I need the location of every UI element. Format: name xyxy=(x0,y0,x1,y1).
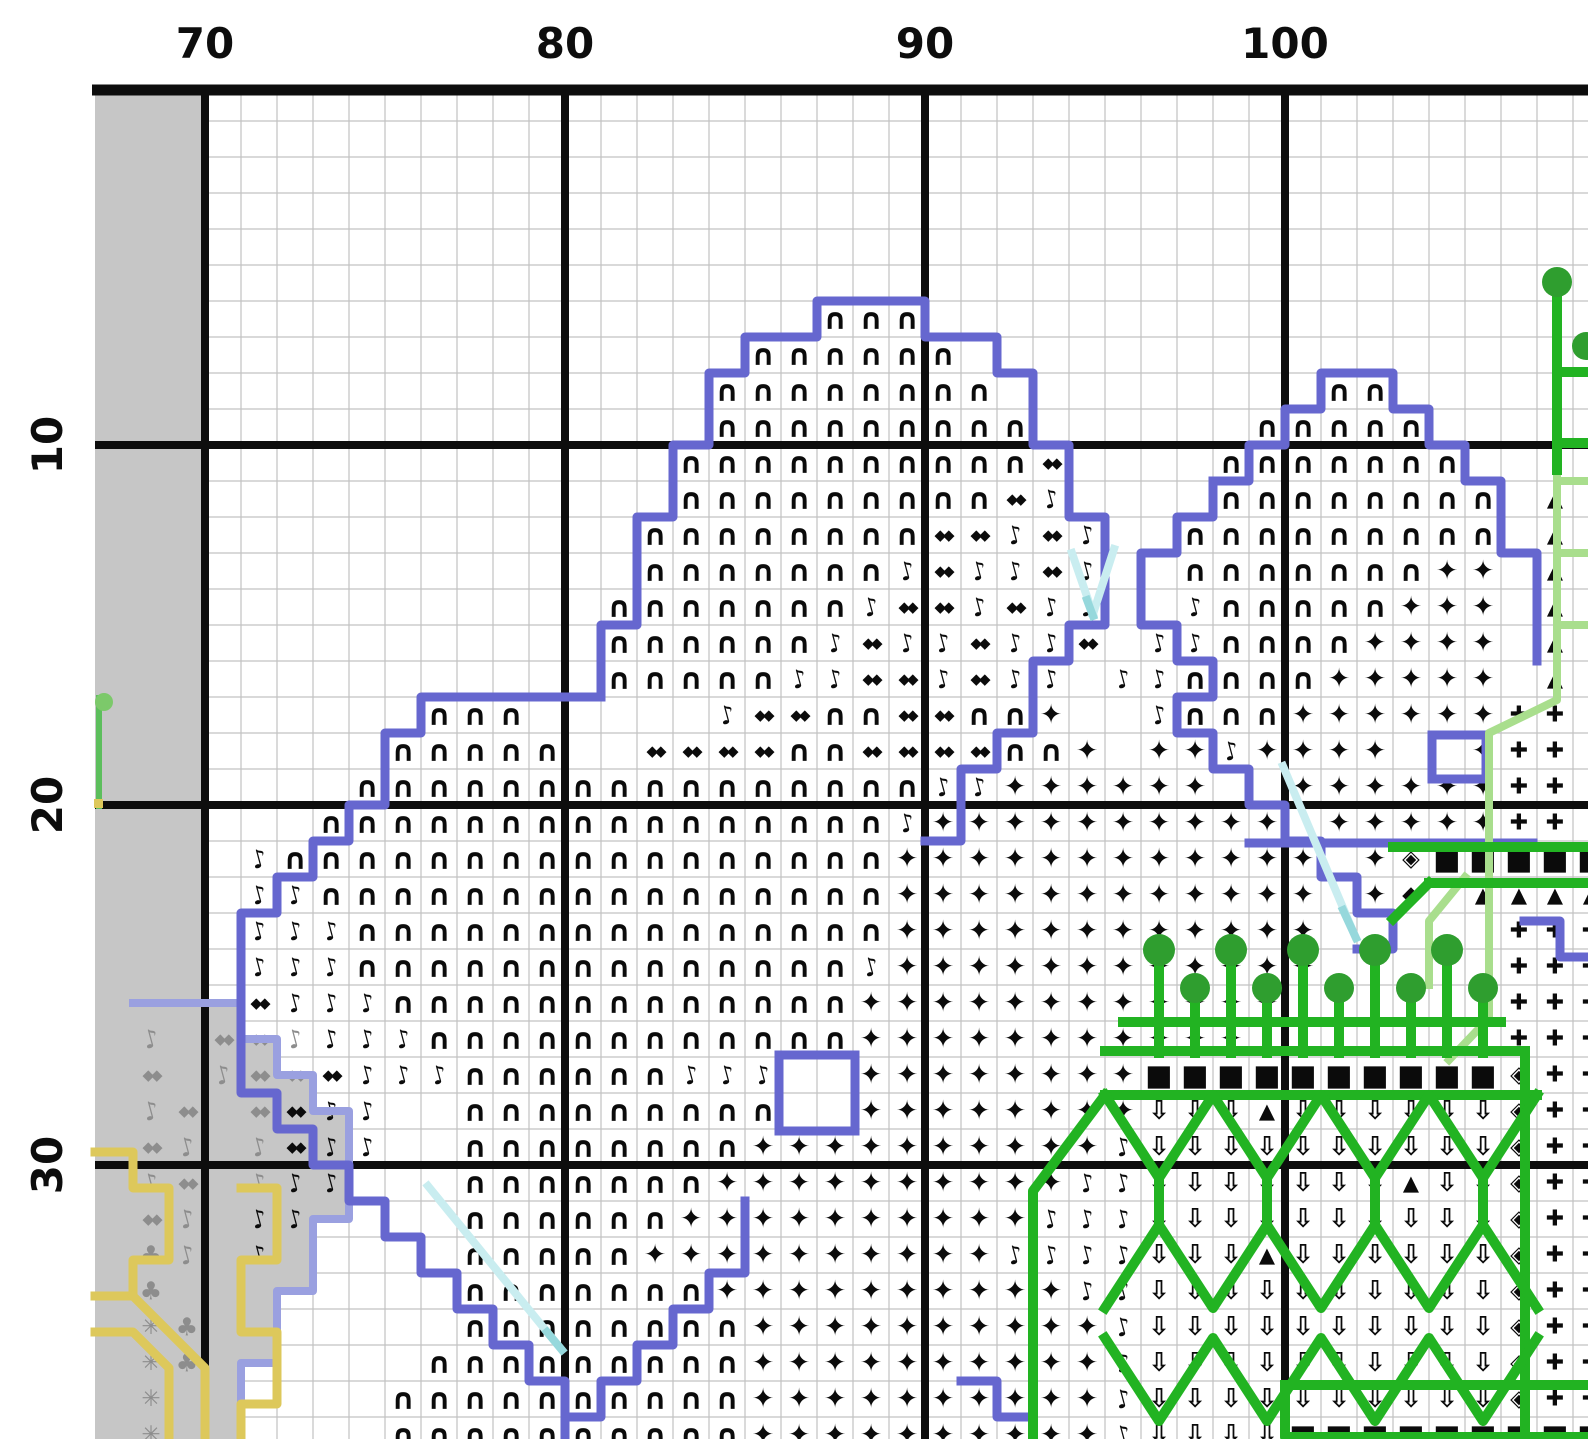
stitch-symbol-arch: ∩ xyxy=(571,1202,595,1236)
stitch-symbol-square: ■ xyxy=(1469,1058,1496,1092)
stitch-symbol-arch: ∩ xyxy=(535,1418,559,1439)
stitch-symbol-arch: ∩ xyxy=(787,626,811,660)
stitch-symbol-star4: ✦ xyxy=(896,952,919,983)
stitch-symbol-arch: ∩ xyxy=(463,1094,487,1128)
stitch-symbol-star4: ✦ xyxy=(932,1384,955,1415)
stitch-symbol-star4: ✦ xyxy=(1256,736,1279,767)
stitch-symbol-arch: ∩ xyxy=(607,1130,631,1164)
stitch-symbol-arch: ∩ xyxy=(895,302,919,336)
stitch-symbol-arch: ∩ xyxy=(499,698,523,732)
stitch-symbol-arch: ∩ xyxy=(391,986,415,1020)
pattern-canvas: 708090100102030∩∩∩∩∩∩∩∩∩∩∩∩∩∩∩∩∩∩∩∩∩∩∩∩∩… xyxy=(0,0,1588,1439)
stitch-symbol-arch: ∩ xyxy=(463,1274,487,1308)
stitch-symbol-star4: ✦ xyxy=(1004,1276,1027,1307)
stitch-symbol-arch: ∩ xyxy=(607,1022,631,1056)
stitch-symbol-arch: ∩ xyxy=(751,950,775,984)
stitch-symbol-arch: ∩ xyxy=(535,1346,559,1380)
stitch-symbol-arch: ∩ xyxy=(715,1310,739,1344)
stitch-symbol-arch: ∩ xyxy=(499,914,523,948)
stitch-symbol-arch: ∩ xyxy=(571,1094,595,1128)
stitch-symbol-down-arrow: ⇩ xyxy=(1292,1168,1314,1198)
stitch-symbol-star4: ✦ xyxy=(1004,1060,1027,1091)
stitch-symbol-arch: ∩ xyxy=(823,878,847,912)
stitch-symbol-star4: ✦ xyxy=(1112,844,1135,875)
stitch-symbol-star4: ✦ xyxy=(968,1240,991,1271)
green-knot-circle xyxy=(1287,934,1319,966)
stitch-symbol-arch: ∩ xyxy=(535,1202,559,1236)
stitch-symbol-heavy-plus: ✚ xyxy=(1510,991,1528,1016)
stitch-symbol-arch: ∩ xyxy=(607,1238,631,1272)
stitch-symbol-star4: ✦ xyxy=(1364,844,1387,875)
stitch-symbol-star4: ✦ xyxy=(1472,592,1495,623)
stitch-symbol-arch: ∩ xyxy=(1003,734,1027,768)
stitch-symbol-arch: ∩ xyxy=(715,626,739,660)
stitch-symbol-arch: ∩ xyxy=(823,770,847,804)
stitch-symbol-star4: ✦ xyxy=(788,1348,811,1379)
stitch-symbol-arch: ∩ xyxy=(1003,410,1027,444)
stitch-symbol-star4: ✦ xyxy=(788,1420,811,1439)
stitch-symbol-arch: ∩ xyxy=(967,482,991,516)
stitch-symbol-arch: ∩ xyxy=(679,518,703,552)
stitch-symbol-down-arrow: ⇩ xyxy=(1328,1312,1350,1342)
stitch-symbol-star4: ✦ xyxy=(1436,700,1459,731)
stitch-symbol-arch: ∩ xyxy=(1399,518,1423,552)
stitch-symbol-arch: ∩ xyxy=(1327,590,1351,624)
stitch-symbol-arch: ∩ xyxy=(1039,734,1063,768)
stitch-symbol-star4: ✦ xyxy=(1112,988,1135,1019)
stitch-symbol-star4: ✦ xyxy=(932,844,955,875)
stitch-symbol-arch: ∩ xyxy=(823,482,847,516)
stitch-symbol-arch: ∩ xyxy=(679,770,703,804)
stitch-symbol-down-arrow: ⇩ xyxy=(1148,1312,1170,1342)
stitch-symbol-star4: ✦ xyxy=(1364,700,1387,731)
stitch-symbol-arch: ∩ xyxy=(427,914,451,948)
stitch-symbol-heavy-plus: ✚ xyxy=(1582,1315,1588,1340)
stitch-symbol-star4: ✦ xyxy=(1436,808,1459,839)
stitch-symbol-arch: ∩ xyxy=(571,1022,595,1056)
stitch-symbol-arch: ∩ xyxy=(823,338,847,372)
stitch-symbol-star4: ✦ xyxy=(1400,772,1423,803)
stitch-symbol-arch: ∩ xyxy=(823,302,847,336)
stitch-symbol-arch: ∩ xyxy=(643,878,667,912)
stitch-symbol-arch: ∩ xyxy=(859,842,883,876)
stitch-symbol-arch: ∩ xyxy=(1399,482,1423,516)
stitch-symbol-arch: ∩ xyxy=(1291,446,1315,480)
stitch-symbol-arch: ∩ xyxy=(1255,626,1279,660)
stitch-symbol-down-arrow: ⇩ xyxy=(1328,1168,1350,1198)
stitch-symbol-star4: ✦ xyxy=(1148,808,1171,839)
stitch-symbol-arch: ∩ xyxy=(535,1238,559,1272)
stitch-symbol-star4: ✦ xyxy=(1400,664,1423,695)
stitch-symbol-star4: ✦ xyxy=(752,1348,775,1379)
stitch-symbol-gray-starburst: ✳ xyxy=(141,1422,160,1439)
stitch-symbol-arch: ∩ xyxy=(1291,590,1315,624)
stitch-symbol-arch: ∩ xyxy=(679,446,703,480)
stitch-symbol-square: ■ xyxy=(1253,1058,1280,1092)
stitch-symbol-heavy-plus: ✚ xyxy=(1582,1027,1588,1052)
stitch-symbol-star4: ✦ xyxy=(1364,628,1387,659)
stitch-symbol-arch: ∩ xyxy=(1255,446,1279,480)
yellow-dot xyxy=(94,799,103,808)
stitch-symbol-arch: ∩ xyxy=(607,1058,631,1092)
stitch-symbol-arch: ∩ xyxy=(715,878,739,912)
stitch-symbol-arch: ∩ xyxy=(859,374,883,408)
stitch-symbol-arch: ∩ xyxy=(931,410,955,444)
stitch-symbol-star4: ✦ xyxy=(680,1204,703,1235)
stitch-symbol-star4: ✦ xyxy=(896,1420,919,1439)
stitch-symbol-arch: ∩ xyxy=(751,482,775,516)
stitch-symbol-arch: ∩ xyxy=(571,770,595,804)
stitch-symbol-arch: ∩ xyxy=(463,1346,487,1380)
stitch-symbol-star4: ✦ xyxy=(1040,1060,1063,1091)
stitch-symbol-arch: ∩ xyxy=(859,302,883,336)
stitch-symbol-star4: ✦ xyxy=(1004,1420,1027,1439)
stitch-symbol-arch: ∩ xyxy=(751,554,775,588)
ruler-label-left: 30 xyxy=(23,1136,72,1194)
stitch-symbol-arch: ∩ xyxy=(859,338,883,372)
stitch-symbol-arch: ∩ xyxy=(1327,410,1351,444)
stitch-symbol-arch: ∩ xyxy=(463,1058,487,1092)
stitch-symbol-star4: ✦ xyxy=(860,1276,883,1307)
stitch-symbol-arch: ∩ xyxy=(1003,446,1027,480)
stitch-symbol-arch: ∩ xyxy=(463,950,487,984)
stitch-symbol-heavy-plus: ✚ xyxy=(1510,739,1528,764)
stitch-symbol-arch: ∩ xyxy=(463,734,487,768)
stitch-symbol-arch: ∩ xyxy=(643,1382,667,1416)
stitch-symbol-arch: ∩ xyxy=(715,1022,739,1056)
stitch-symbol-star4: ✦ xyxy=(1076,988,1099,1019)
stitch-symbol-arch: ∩ xyxy=(391,734,415,768)
stitch-symbol-star4: ✦ xyxy=(860,1240,883,1271)
stitch-symbol-arch: ∩ xyxy=(463,1382,487,1416)
stitch-symbol-arch: ∩ xyxy=(643,554,667,588)
ruler-label-top: 70 xyxy=(176,19,234,68)
stitch-symbol-arch: ∩ xyxy=(571,986,595,1020)
stitch-symbol-arch: ∩ xyxy=(427,950,451,984)
stitch-symbol-arch: ∩ xyxy=(1255,554,1279,588)
stitch-symbol-down-arrow: ⇩ xyxy=(1148,1096,1170,1126)
stitch-symbol-star4: ✦ xyxy=(1004,1024,1027,1055)
stitch-symbol-arch: ∩ xyxy=(499,1418,523,1439)
stitch-symbol-star4: ✦ xyxy=(752,1420,775,1439)
stitch-symbol-star4: ✦ xyxy=(1004,1132,1027,1163)
stitch-symbol-star4: ✦ xyxy=(1112,952,1135,983)
stitch-symbol-down-arrow: ⇩ xyxy=(1472,1096,1494,1126)
stitch-symbol-arch: ∩ xyxy=(643,1418,667,1439)
stitch-symbol-arch: ∩ xyxy=(391,914,415,948)
stitch-symbol-arch: ∩ xyxy=(679,914,703,948)
stitch-symbol-arch: ∩ xyxy=(499,1094,523,1128)
stitch-symbol-arch: ∩ xyxy=(679,1274,703,1308)
stitch-symbol-star4: ✦ xyxy=(1076,1060,1099,1091)
stitch-symbol-star4: ✦ xyxy=(1148,736,1171,767)
stitch-symbol-triangle: ▲ xyxy=(1259,1243,1276,1267)
stitch-symbol-star4: ✦ xyxy=(932,988,955,1019)
stitch-symbol-arch: ∩ xyxy=(571,806,595,840)
stitch-symbol-down-arrow: ⇩ xyxy=(1184,1204,1206,1234)
stitch-symbol-star4: ✦ xyxy=(1040,1096,1063,1127)
stitch-symbol-star4: ✦ xyxy=(1076,952,1099,983)
stitch-symbol-star4: ✦ xyxy=(1040,952,1063,983)
stitch-symbol-star4: ✦ xyxy=(1076,1024,1099,1055)
stitch-symbol-arch: ∩ xyxy=(715,842,739,876)
stitch-symbol-arch: ∩ xyxy=(391,842,415,876)
stitch-symbol-down-arrow: ⇩ xyxy=(1256,1276,1278,1306)
stitch-symbol-square: ■ xyxy=(1325,1058,1352,1092)
stitch-symbol-arch: ∩ xyxy=(787,914,811,948)
stitch-symbol-arch: ∩ xyxy=(715,914,739,948)
stitch-symbol-arch: ∩ xyxy=(787,374,811,408)
stitch-symbol-arch: ∩ xyxy=(823,446,847,480)
stitch-symbol-star4: ✦ xyxy=(1436,628,1459,659)
stitch-symbol-arch: ∩ xyxy=(643,1310,667,1344)
stitch-symbol-arch: ∩ xyxy=(787,878,811,912)
stitch-symbol-star4: ✦ xyxy=(1004,808,1027,839)
stitch-symbol-heavy-plus: ✚ xyxy=(1546,1027,1564,1052)
stitch-symbol-star4: ✦ xyxy=(824,1240,847,1271)
stitch-symbol-arch: ∩ xyxy=(967,698,991,732)
offpage-band xyxy=(95,85,205,1439)
stitch-symbol-down-arrow: ⇩ xyxy=(1328,1204,1350,1234)
stitch-symbol-star4: ✦ xyxy=(1256,844,1279,875)
stitch-symbol-arch: ∩ xyxy=(895,374,919,408)
stitch-symbol-arch: ∩ xyxy=(427,1418,451,1439)
stitch-symbol-star4: ✦ xyxy=(824,1276,847,1307)
stitch-symbol-arch: ∩ xyxy=(355,950,379,984)
stitch-symbol-arch: ∩ xyxy=(535,806,559,840)
ruler-label-top: 90 xyxy=(896,19,954,68)
stitch-symbol-down-arrow: ⇩ xyxy=(1220,1312,1242,1342)
stitch-symbol-star4: ✦ xyxy=(860,1384,883,1415)
stitch-symbol-star4: ✦ xyxy=(968,1204,991,1235)
stitch-symbol-star4: ✦ xyxy=(1436,664,1459,695)
stitch-symbol-star4: ✦ xyxy=(1040,700,1063,731)
stitch-symbol-arch: ∩ xyxy=(751,1022,775,1056)
stitch-symbol-star4: ✦ xyxy=(1112,1060,1135,1091)
stitch-symbol-arch: ∩ xyxy=(463,806,487,840)
stitch-symbol-arch: ∩ xyxy=(643,590,667,624)
stitch-symbol-arch: ∩ xyxy=(391,1382,415,1416)
stitch-symbol-arch: ∩ xyxy=(1255,698,1279,732)
stitch-symbol-arch: ∩ xyxy=(463,1166,487,1200)
stitch-symbol-heavy-plus: ✚ xyxy=(1546,1315,1564,1340)
stitch-symbol-arch: ∩ xyxy=(1399,410,1423,444)
stitch-symbol-arch: ∩ xyxy=(859,698,883,732)
green-knot-circle xyxy=(1252,973,1282,1003)
stitch-symbol-arch: ∩ xyxy=(787,554,811,588)
stitch-symbol-arch: ∩ xyxy=(1327,374,1351,408)
stitch-symbol-arch: ∩ xyxy=(463,1130,487,1164)
stitch-symbol-star4: ✦ xyxy=(932,1096,955,1127)
stitch-symbol-star4: ✦ xyxy=(968,1384,991,1415)
ruler-label-left: 20 xyxy=(23,776,72,834)
stitch-symbol-arch: ∩ xyxy=(1219,662,1243,696)
stitch-symbol-star4: ✦ xyxy=(968,988,991,1019)
stitch-symbol-arch: ∩ xyxy=(895,770,919,804)
stitch-symbol-star4: ✦ xyxy=(1436,556,1459,587)
stitch-symbol-down-arrow: ⇩ xyxy=(1148,1348,1170,1378)
stitch-symbol-arch: ∩ xyxy=(1363,374,1387,408)
stitch-symbol-arch: ∩ xyxy=(895,482,919,516)
stitch-symbol-gray-starburst: ✳ xyxy=(141,1386,160,1412)
stitch-symbol-arch: ∩ xyxy=(823,554,847,588)
stitch-symbol-arch: ∩ xyxy=(535,1274,559,1308)
stitch-symbol-arch: ∩ xyxy=(427,878,451,912)
stitch-symbol-star4: ✦ xyxy=(1220,844,1243,875)
stitch-symbol-arch: ∩ xyxy=(1255,590,1279,624)
green-knot-circle xyxy=(1542,267,1572,297)
stitch-symbol-arch: ∩ xyxy=(1327,446,1351,480)
stitch-symbol-star4: ✦ xyxy=(1472,628,1495,659)
stitch-symbol-arch: ∩ xyxy=(751,662,775,696)
stitch-symbol-star4: ✦ xyxy=(860,1168,883,1199)
stitch-symbol-arch: ∩ xyxy=(895,518,919,552)
stitch-symbol-star4: ✦ xyxy=(1004,1384,1027,1415)
stitch-symbol-star4: ✦ xyxy=(932,916,955,947)
stitch-symbol-arch: ∩ xyxy=(859,518,883,552)
stitch-symbol-arch: ∩ xyxy=(1219,698,1243,732)
stitch-symbol-star4: ✦ xyxy=(788,1240,811,1271)
stitch-symbol-arch: ∩ xyxy=(571,1238,595,1272)
stitch-symbol-down-arrow: ⇩ xyxy=(1220,1168,1242,1198)
stitch-symbol-arch: ∩ xyxy=(823,698,847,732)
stitch-symbol-arch: ∩ xyxy=(535,1130,559,1164)
stitch-symbol-down-arrow: ⇩ xyxy=(1436,1204,1458,1234)
stitch-symbol-arch: ∩ xyxy=(571,1166,595,1200)
stitch-symbol-heavy-plus: ✚ xyxy=(1546,1063,1564,1088)
stitch-symbol-star4: ✦ xyxy=(896,1276,919,1307)
stitch-symbol-star4: ✦ xyxy=(752,1132,775,1163)
stitch-symbol-arch: ∩ xyxy=(463,878,487,912)
stitch-symbol-down-arrow: ⇩ xyxy=(1436,1168,1458,1198)
stitch-symbol-arch: ∩ xyxy=(571,1310,595,1344)
stitch-symbol-arch: ∩ xyxy=(715,410,739,444)
stitch-symbol-heavy-plus: ✚ xyxy=(1546,1207,1564,1232)
stitch-symbol-arch: ∩ xyxy=(967,374,991,408)
stitch-symbol-arch: ∩ xyxy=(859,410,883,444)
stitch-symbol-arch: ∩ xyxy=(1255,518,1279,552)
stitch-symbol-star4: ✦ xyxy=(1220,880,1243,911)
stitch-symbol-arch: ∩ xyxy=(499,770,523,804)
stitch-symbol-arch: ∩ xyxy=(535,842,559,876)
stitch-symbol-arch: ∩ xyxy=(499,1202,523,1236)
stitch-symbol-arch: ∩ xyxy=(751,842,775,876)
stitch-symbol-star4: ✦ xyxy=(968,1024,991,1055)
stitch-symbol-arch: ∩ xyxy=(499,1130,523,1164)
stitch-symbol-arch: ∩ xyxy=(607,1094,631,1128)
stitch-symbol-star4: ✦ xyxy=(932,1240,955,1271)
stitch-symbol-arch: ∩ xyxy=(463,1418,487,1439)
stitch-symbol-star4: ✦ xyxy=(1220,808,1243,839)
stitch-symbol-star4: ✦ xyxy=(1040,880,1063,911)
stitch-symbol-star4: ✦ xyxy=(1472,664,1495,695)
stitch-symbol-heavy-plus: ✚ xyxy=(1582,1099,1588,1124)
stitch-symbol-star4: ✦ xyxy=(968,916,991,947)
stitch-symbol-arch: ∩ xyxy=(391,806,415,840)
stitch-symbol-arch: ∩ xyxy=(1183,554,1207,588)
stitch-symbol-star4: ✦ xyxy=(896,1096,919,1127)
stitch-symbol-star4: ✦ xyxy=(896,1204,919,1235)
stitch-symbol-arch: ∩ xyxy=(787,446,811,480)
stitch-symbol-star4: ✦ xyxy=(860,1420,883,1439)
stitch-symbol-arch: ∩ xyxy=(1435,482,1459,516)
stitch-symbol-arch: ∩ xyxy=(679,878,703,912)
stitch-symbol-arch: ∩ xyxy=(643,1130,667,1164)
stitch-symbol-arch: ∩ xyxy=(859,878,883,912)
stitch-symbol-arch: ∩ xyxy=(607,1346,631,1380)
stitch-symbol-arch: ∩ xyxy=(715,374,739,408)
stitch-symbol-arch: ∩ xyxy=(751,374,775,408)
stitch-symbol-arch: ∩ xyxy=(715,662,739,696)
stitch-symbol-arch: ∩ xyxy=(967,410,991,444)
stitch-symbol-heavy-plus: ✚ xyxy=(1546,811,1564,836)
stitch-symbol-star4: ✦ xyxy=(1040,1384,1063,1415)
stitch-symbol-arch: ∩ xyxy=(859,770,883,804)
stitch-symbol-arch: ∩ xyxy=(607,914,631,948)
stitch-symbol-arch: ∩ xyxy=(679,1166,703,1200)
stitch-symbol-star4: ✦ xyxy=(1328,808,1351,839)
stitch-symbol-star4: ✦ xyxy=(896,916,919,947)
stitch-symbol-arch: ∩ xyxy=(391,878,415,912)
stitch-symbol-arch: ∩ xyxy=(463,914,487,948)
ruler-label-left: 10 xyxy=(23,416,72,474)
stitch-symbol-star4: ✦ xyxy=(1184,808,1207,839)
stitch-symbol-star4: ✦ xyxy=(752,1276,775,1307)
stitch-symbol-arch: ∩ xyxy=(715,554,739,588)
stitch-symbol-arch: ∩ xyxy=(1219,554,1243,588)
stitch-symbol-arch: ∩ xyxy=(1399,554,1423,588)
stitch-symbol-arch: ∩ xyxy=(571,1058,595,1092)
stitch-symbol-arch: ∩ xyxy=(1219,446,1243,480)
green-knot-circle xyxy=(1180,973,1210,1003)
stitch-symbol-star4: ✦ xyxy=(752,1204,775,1235)
stitch-symbol-arch: ∩ xyxy=(571,1274,595,1308)
stitch-symbol-arch: ∩ xyxy=(535,1022,559,1056)
stitch-symbol-star4: ✦ xyxy=(1184,916,1207,947)
stitch-symbol-arch: ∩ xyxy=(787,986,811,1020)
stitch-symbol-arch: ∩ xyxy=(571,842,595,876)
stitch-symbol-arch: ∩ xyxy=(751,1094,775,1128)
stitch-symbol-arch: ∩ xyxy=(823,806,847,840)
stitch-symbol-heavy-plus: ✚ xyxy=(1582,1063,1588,1088)
stitch-symbol-star4: ✦ xyxy=(896,988,919,1019)
stitch-symbol-star4: ✦ xyxy=(1004,1348,1027,1379)
stitch-symbol-arch: ∩ xyxy=(751,626,775,660)
stitch-symbol-down-arrow: ⇩ xyxy=(1472,1312,1494,1342)
stitch-symbol-arch: ∩ xyxy=(607,842,631,876)
stitch-symbol-arch: ∩ xyxy=(1255,482,1279,516)
stitch-symbol-arch: ∩ xyxy=(1363,590,1387,624)
stitch-symbol-heavy-plus: ✚ xyxy=(1582,1207,1588,1232)
stitch-symbol-arch: ∩ xyxy=(931,482,955,516)
stitch-symbol-star4: ✦ xyxy=(896,1132,919,1163)
stitch-symbol-arch: ∩ xyxy=(679,950,703,984)
stitch-symbol-arch: ∩ xyxy=(571,1130,595,1164)
stitch-symbol-arch: ∩ xyxy=(499,1382,523,1416)
stitch-symbol-arch: ∩ xyxy=(463,1022,487,1056)
stitch-symbol-star4: ✦ xyxy=(1004,772,1027,803)
green-knot-circle xyxy=(1431,934,1463,966)
stitch-symbol-arch: ∩ xyxy=(1363,446,1387,480)
stitch-symbol-arch: ∩ xyxy=(679,482,703,516)
stitch-symbol-arch: ∩ xyxy=(499,1058,523,1092)
stitch-symbol-arch: ∩ xyxy=(427,1346,451,1380)
stitch-symbol-down-arrow: ⇩ xyxy=(1148,1276,1170,1306)
stitch-symbol-down-arrow: ⇩ xyxy=(1292,1312,1314,1342)
stitch-symbol-star4: ✦ xyxy=(1184,772,1207,803)
stitch-symbol-star4: ✦ xyxy=(716,1240,739,1271)
stitch-symbol-arch: ∩ xyxy=(499,1166,523,1200)
